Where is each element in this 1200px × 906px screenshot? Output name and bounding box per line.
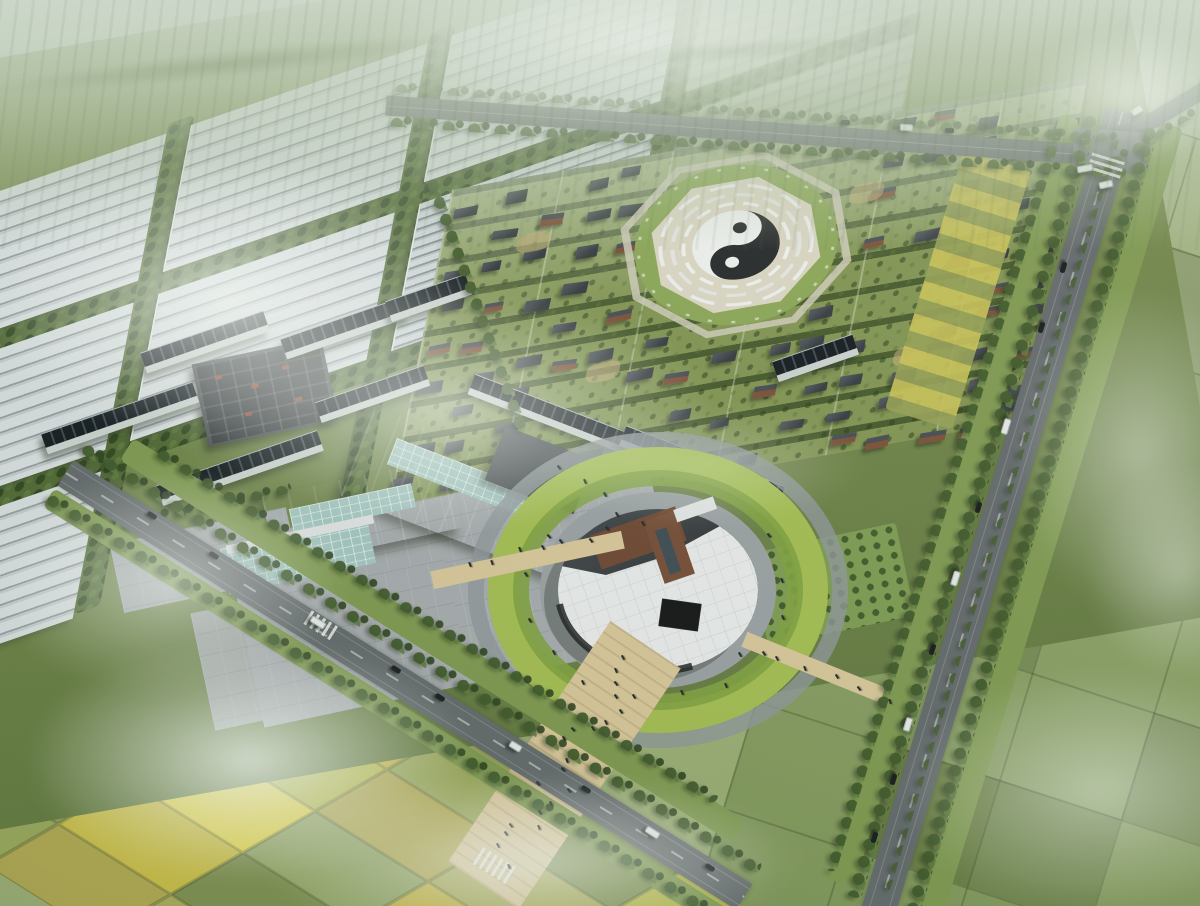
courtyard-red-accent: [282, 364, 290, 369]
courtyard-red-accent: [245, 411, 253, 416]
light-well: [658, 598, 702, 631]
distant-haze-band: [0, 0, 1200, 250]
distant-crop-rows: [0, 0, 1200, 250]
courtyard-red-accent: [215, 375, 223, 380]
aerial-render: [0, 0, 1200, 906]
courtyard-red-accent: [295, 396, 303, 401]
courtyard-red-accent: [251, 383, 259, 388]
